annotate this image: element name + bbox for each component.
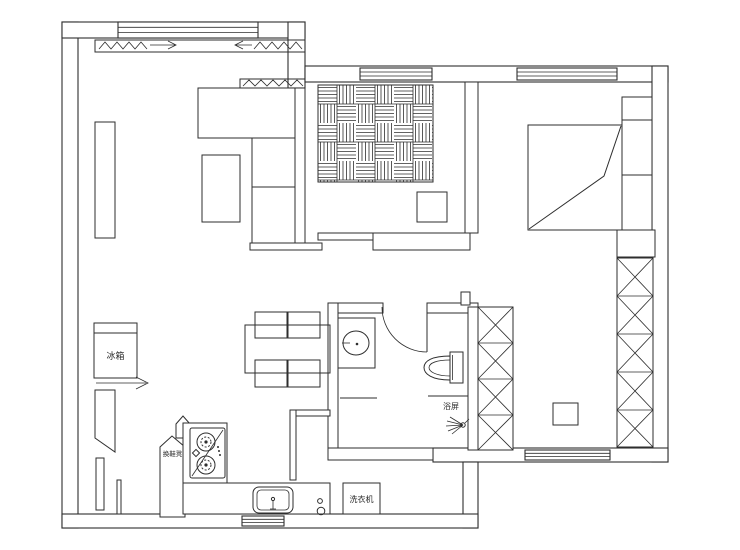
washing-machine-label: 洗衣机: [350, 494, 374, 504]
bed-icon: [528, 125, 622, 230]
floor-plan-canvas: 冰箱 换鞋凳: [0, 0, 740, 550]
shoe-bench-label: 换鞋凳: [163, 449, 183, 458]
window-top-left: [118, 22, 258, 38]
window-bedroom: [517, 68, 617, 80]
shoe-bench-icon: 换鞋凳: [160, 436, 185, 517]
wash-basin-icon: [338, 318, 375, 368]
dining-set-icon: [245, 312, 330, 387]
floor-plan-page: 冰箱 换鞋凳: [0, 0, 740, 550]
tall-cabinet-icon: [95, 122, 115, 238]
shower-head-icon: [446, 417, 469, 434]
toilet-icon: [424, 352, 463, 383]
window-closet-bottom: [525, 450, 610, 460]
bedside-cabinet-icon: [617, 97, 655, 257]
window-kitchen-bottom: [242, 516, 284, 526]
kitchen-sink-icon: [253, 487, 293, 513]
side-table-icon: [417, 192, 447, 222]
refrigerator-icon: 冰箱: [94, 323, 148, 389]
tatami-weave-icon: [318, 85, 433, 182]
coffee-table-icon: [202, 155, 240, 222]
sliding-track-hatch-icon: [95, 40, 305, 88]
entry-cabinet-icon: [95, 390, 115, 510]
washing-machine-icon: 洗衣机: [343, 483, 380, 514]
door-arc-icon: [382, 307, 427, 352]
gas-stove-icon: [190, 428, 225, 478]
shower-screen-label: 浴屏: [443, 401, 459, 411]
refrigerator-label: 冰箱: [106, 350, 124, 361]
door-arrow-icon: [96, 377, 148, 389]
window-tatami: [360, 68, 432, 80]
shower-screen-icon: 浴屏: [340, 396, 468, 411]
closet-stool-icon: [553, 403, 578, 425]
